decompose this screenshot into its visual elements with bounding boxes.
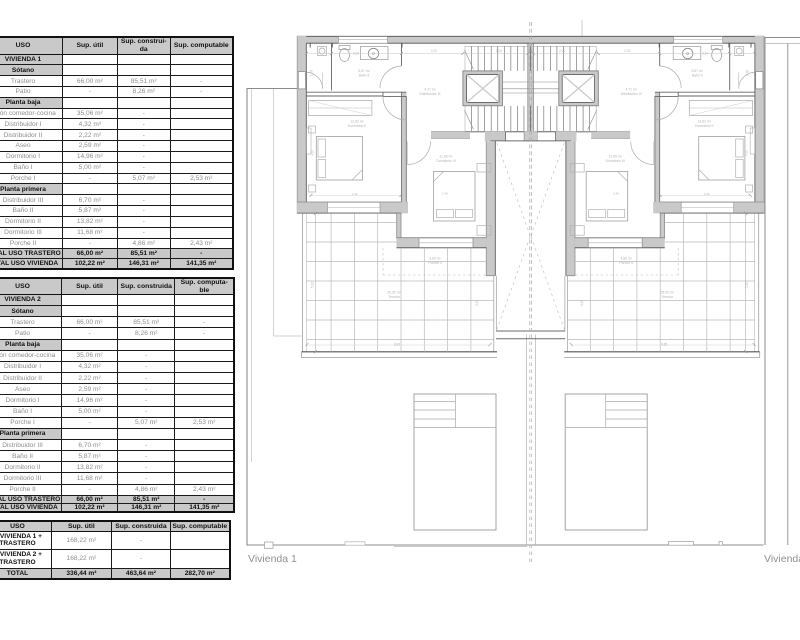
svg-text:Distribuidor III: Distribuidor III bbox=[621, 92, 642, 96]
svg-text:Porche II: Porche II bbox=[428, 261, 442, 265]
svg-text:Dormitorio III: Dormitorio III bbox=[436, 159, 455, 163]
svg-text:2,10: 2,10 bbox=[353, 51, 359, 55]
svg-text:5,87 m²: 5,87 m² bbox=[691, 69, 703, 73]
svg-text:5,10: 5,10 bbox=[745, 282, 749, 288]
svg-text:4,71 m²: 4,71 m² bbox=[424, 88, 436, 92]
svg-text:11,68 m²: 11,68 m² bbox=[609, 155, 623, 159]
svg-text:1,78: 1,78 bbox=[746, 70, 750, 76]
svg-text:35,05 m²: 35,05 m² bbox=[661, 291, 675, 295]
svg-text:5,87 m²: 5,87 m² bbox=[358, 69, 370, 73]
svg-text:Distribuidor III: Distribuidor III bbox=[420, 92, 441, 96]
svg-text:4,86 m²: 4,86 m² bbox=[620, 257, 632, 261]
svg-text:4,86 m²: 4,86 m² bbox=[429, 257, 441, 261]
svg-text:3,15: 3,15 bbox=[475, 300, 479, 306]
svg-text:13,82 m²: 13,82 m² bbox=[350, 120, 364, 124]
svg-text:11,68 m²: 11,68 m² bbox=[439, 155, 453, 159]
svg-text:Baño II: Baño II bbox=[359, 73, 370, 77]
svg-text:Terraza: Terraza bbox=[662, 295, 673, 299]
svg-text:2,10: 2,10 bbox=[702, 51, 708, 55]
svg-text:2,20: 2,20 bbox=[431, 49, 437, 53]
svg-text:Dormitorio II: Dormitorio II bbox=[348, 124, 367, 128]
svg-text:Dormitorio II: Dormitorio II bbox=[695, 124, 714, 128]
svg-text:Porche II: Porche II bbox=[619, 261, 633, 265]
svg-text:8,85: 8,85 bbox=[661, 343, 667, 347]
svg-text:2,40: 2,40 bbox=[442, 192, 448, 196]
svg-text:3,40: 3,40 bbox=[352, 192, 358, 196]
svg-text:8,85: 8,85 bbox=[394, 343, 400, 347]
svg-text:Baño II: Baño II bbox=[692, 73, 703, 77]
svg-text:1,78: 1,78 bbox=[310, 70, 314, 76]
svg-text:Vivienda 2: Vivienda 2 bbox=[764, 553, 800, 565]
svg-text:Dormitorio III: Dormitorio III bbox=[605, 159, 624, 163]
svg-text:5,10: 5,10 bbox=[311, 282, 315, 288]
svg-text:4,71 m²: 4,71 m² bbox=[625, 88, 637, 92]
svg-text:2,20: 2,20 bbox=[496, 49, 502, 53]
svg-text:3,40: 3,40 bbox=[704, 192, 710, 196]
svg-text:3,15: 3,15 bbox=[580, 300, 584, 306]
svg-text:4,15: 4,15 bbox=[311, 150, 315, 156]
svg-text:2,20: 2,20 bbox=[624, 49, 630, 53]
svg-text:2,40: 2,40 bbox=[613, 192, 619, 196]
svg-text:4,15: 4,15 bbox=[745, 150, 749, 156]
svg-text:13,82 m²: 13,82 m² bbox=[698, 120, 712, 124]
svg-text:Vivienda 1: Vivienda 1 bbox=[248, 553, 297, 565]
svg-text:35,05 m²: 35,05 m² bbox=[387, 291, 401, 295]
svg-text:2,20: 2,20 bbox=[559, 49, 565, 53]
svg-text:Terraza: Terraza bbox=[388, 295, 399, 299]
